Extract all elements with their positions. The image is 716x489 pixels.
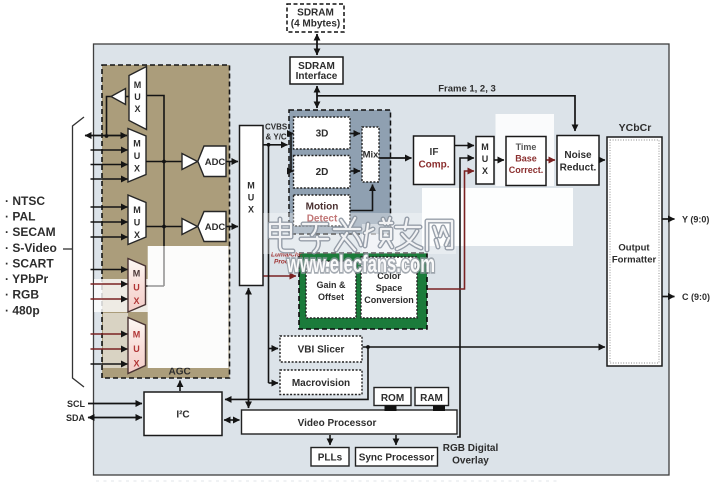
svg-text:Macrovision: Macrovision	[292, 378, 350, 389]
svg-text:C (9:0): C (9:0)	[682, 292, 710, 302]
svg-text:· SCART: · SCART	[5, 257, 54, 271]
svg-text:· PAL: · PAL	[5, 210, 35, 224]
svg-text:M: M	[133, 205, 141, 215]
svg-text:· RGB: · RGB	[5, 288, 39, 302]
svg-text:SDA: SDA	[66, 413, 86, 423]
svg-text:· 480p: · 480p	[5, 304, 40, 318]
svg-text:X: X	[134, 164, 140, 174]
svg-text:YCbCr: YCbCr	[619, 122, 652, 134]
svg-text:· S-Video: · S-Video	[5, 241, 57, 255]
svg-text:RGB Digital: RGB Digital	[443, 443, 499, 454]
svg-text:X: X	[133, 359, 139, 369]
svg-text:Gain &: Gain &	[316, 280, 346, 290]
svg-text:Output: Output	[618, 243, 650, 254]
svg-text:U: U	[134, 92, 141, 102]
svg-text:U: U	[482, 154, 489, 164]
svg-text:ADC: ADC	[205, 157, 226, 168]
svg-text:X: X	[134, 230, 140, 240]
svg-text:Offset: Offset	[318, 292, 344, 302]
svg-text:Motion: Motion	[306, 202, 339, 213]
svg-text:M: M	[134, 80, 142, 90]
svg-text:ROM: ROM	[381, 393, 404, 404]
svg-text:U: U	[248, 193, 255, 203]
svg-text:M: M	[481, 142, 489, 152]
svg-text:X: X	[482, 166, 488, 176]
svg-text:AGC: AGC	[169, 367, 191, 378]
svg-text:ADC: ADC	[205, 222, 226, 233]
svg-text:Comp.: Comp.	[418, 160, 449, 171]
svg-text:& Y/C: & Y/C	[266, 133, 287, 142]
svg-text:Interface: Interface	[296, 71, 338, 82]
svg-text:I²C: I²C	[176, 410, 189, 421]
svg-text:M: M	[247, 181, 255, 191]
svg-text:U: U	[133, 344, 140, 354]
svg-text:Base: Base	[515, 154, 537, 164]
svg-text:M: M	[133, 330, 141, 340]
svg-text:X: X	[133, 296, 139, 306]
svg-text:· NTSC: · NTSC	[5, 194, 45, 208]
svg-text:PLLs: PLLs	[318, 453, 343, 464]
svg-text:www.elecfans.com: www.elecfans.com	[286, 251, 435, 278]
svg-text:Overlay: Overlay	[452, 456, 489, 467]
svg-text:3D: 3D	[316, 129, 329, 140]
svg-text:· YPbPr: · YPbPr	[5, 272, 48, 286]
svg-text:M: M	[133, 269, 141, 279]
svg-text:Noise: Noise	[564, 150, 592, 161]
svg-text:Time: Time	[516, 142, 537, 152]
svg-text:Frame 1, 2, 3: Frame 1, 2, 3	[438, 84, 496, 95]
svg-text:U: U	[134, 151, 141, 161]
svg-text:Correct.: Correct.	[509, 165, 544, 175]
svg-text:· SECAM: · SECAM	[5, 225, 56, 239]
svg-text:CVBS: CVBS	[265, 123, 288, 132]
svg-text:(4 Mbytes): (4 Mbytes)	[291, 19, 340, 30]
svg-text:Sync Processor: Sync Processor	[359, 453, 435, 464]
svg-text:2D: 2D	[316, 167, 329, 178]
svg-text:Video Processor: Video Processor	[298, 418, 377, 429]
svg-text:SDRAM: SDRAM	[297, 8, 334, 19]
svg-text:X: X	[134, 104, 140, 114]
svg-text:U: U	[133, 283, 140, 293]
svg-text:X: X	[248, 205, 254, 215]
svg-text:Y (9:0): Y (9:0)	[682, 215, 709, 225]
svg-text:U: U	[134, 218, 141, 228]
svg-text:Mix: Mix	[363, 150, 380, 161]
svg-text:Space: Space	[376, 283, 403, 293]
svg-text:Conversion: Conversion	[364, 295, 414, 305]
svg-text:RAM: RAM	[420, 393, 443, 404]
svg-text:SCL: SCL	[67, 399, 86, 409]
svg-text:IF: IF	[430, 147, 439, 158]
svg-text:Reduct.: Reduct.	[560, 163, 597, 174]
svg-text:VBI Slicer: VBI Slicer	[298, 345, 345, 356]
svg-text:Formatter: Formatter	[612, 255, 657, 266]
svg-text:M: M	[133, 139, 141, 149]
